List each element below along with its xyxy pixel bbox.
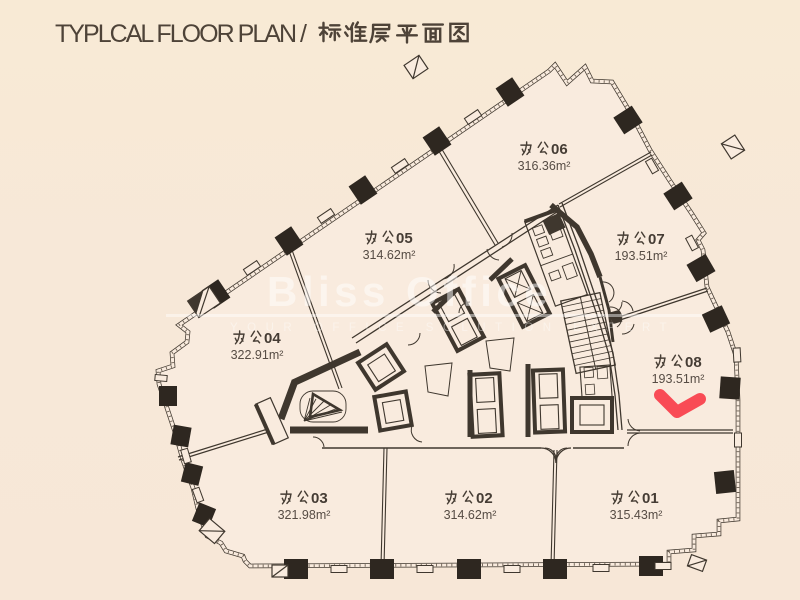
svg-text:08: 08 <box>685 354 702 371</box>
svg-text:322.91m²: 322.91m² <box>231 348 284 362</box>
svg-text:193.51m²: 193.51m² <box>615 249 668 263</box>
svg-text:TYPLCAL FLOOR PLAN /: TYPLCAL FLOOR PLAN / <box>55 20 307 48</box>
svg-text:315.43m²: 315.43m² <box>610 508 663 522</box>
svg-text:02: 02 <box>476 490 493 507</box>
svg-text:05: 05 <box>396 230 413 247</box>
svg-text:07: 07 <box>648 231 665 248</box>
svg-text:03: 03 <box>311 490 328 507</box>
svg-text:193.51m²: 193.51m² <box>652 372 705 386</box>
svg-text:YOUR OFFICE SOLUTION EXPERT: YOUR OFFICE SOLUTION EXPERT <box>230 322 676 334</box>
svg-text:01: 01 <box>642 490 659 507</box>
svg-text:Bliss Office: Bliss Office <box>267 268 552 315</box>
svg-text:314.62m²: 314.62m² <box>444 508 497 522</box>
svg-text:314.62m²: 314.62m² <box>363 248 416 262</box>
svg-text:316.36m²: 316.36m² <box>518 159 571 173</box>
svg-text:321.98m²: 321.98m² <box>278 508 331 522</box>
svg-text:06: 06 <box>551 141 568 158</box>
